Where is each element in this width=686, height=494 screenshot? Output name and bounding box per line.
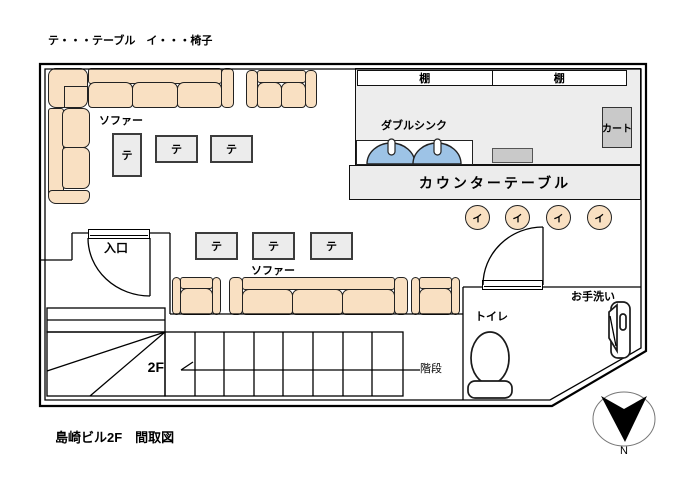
stair-treads bbox=[195, 332, 372, 396]
sill-line bbox=[90, 235, 148, 236]
counter-table: カウンターテーブル bbox=[349, 165, 641, 200]
toilet-label: トイレ bbox=[475, 311, 508, 323]
toilet-room-walls bbox=[463, 287, 641, 400]
counter-chair-2: イ bbox=[505, 205, 530, 230]
sofa3-armrest bbox=[229, 277, 243, 315]
table-2: テ bbox=[155, 135, 198, 163]
shelf-right: 棚 bbox=[493, 71, 627, 85]
counter-chair-1: イ bbox=[465, 205, 490, 230]
washbasin-cabinet bbox=[611, 302, 630, 358]
table-6: テ bbox=[310, 232, 353, 260]
toilet-tank bbox=[468, 381, 512, 398]
legend-text: テ・・・テーブル イ・・・椅子 bbox=[48, 35, 212, 47]
sofa-armrest bbox=[221, 68, 234, 108]
toilet-door-arc bbox=[483, 227, 543, 285]
sofa-endcap bbox=[48, 190, 90, 204]
table-3: テ bbox=[210, 135, 253, 163]
sill-line bbox=[484, 286, 541, 287]
sofa-cushion bbox=[62, 108, 90, 148]
double-sink-unit bbox=[356, 140, 473, 165]
sofa3-cushion bbox=[342, 289, 395, 315]
kitchen-appliance bbox=[492, 148, 533, 163]
armchair2-arm bbox=[451, 277, 460, 315]
cart: カート bbox=[602, 107, 632, 148]
sofa3-cushion bbox=[242, 289, 293, 315]
toilet-door-sill bbox=[482, 280, 543, 290]
floor-2f-label: 2F bbox=[138, 360, 164, 375]
counter-chair-4: イ bbox=[587, 205, 612, 230]
sofa3-cushion bbox=[292, 289, 343, 315]
sofa2-cushion bbox=[257, 82, 282, 108]
entrance-label: 入口 bbox=[104, 242, 144, 255]
handwash-label: お手洗い bbox=[571, 291, 615, 303]
washbasin-handle bbox=[620, 314, 626, 330]
sofa3-armrest bbox=[394, 277, 408, 315]
shelf-left: 棚 bbox=[358, 71, 493, 85]
sofa-label-top: ソファー bbox=[99, 115, 143, 127]
table-5: テ bbox=[252, 232, 295, 260]
sofa-corner-seam bbox=[64, 86, 88, 108]
sofa2-cushion bbox=[281, 82, 306, 108]
sofa-cushion bbox=[88, 82, 133, 108]
stair-top-steps bbox=[47, 308, 165, 332]
floor-plan: テ・・・テーブル イ・・・椅子 島崎ビル2F 間取図 棚 棚 カート ダブルシン… bbox=[0, 0, 686, 494]
plan-title: 島崎ビル2F 間取図 bbox=[55, 431, 174, 445]
washbasin-bowl bbox=[609, 305, 617, 351]
armchair2-cushion bbox=[419, 288, 452, 315]
north-arrow-icon bbox=[601, 396, 647, 442]
washbasin-detail bbox=[610, 316, 616, 346]
table-4: テ bbox=[195, 232, 238, 260]
sofa-label-mid: ソファー bbox=[251, 265, 295, 277]
armchair1-cushion bbox=[180, 288, 213, 315]
stairs-label: 階段 bbox=[420, 363, 442, 375]
armchair1-arm bbox=[212, 277, 221, 315]
sofa-cushion bbox=[132, 82, 178, 108]
sofa-cushion bbox=[62, 147, 90, 189]
sofa-cushion bbox=[177, 82, 222, 108]
shelf-band: 棚 棚 bbox=[357, 70, 627, 86]
toilet-bowl bbox=[471, 332, 509, 384]
counter-chair-3: イ bbox=[546, 205, 571, 230]
sofa2-armrest bbox=[305, 70, 317, 108]
stair-run bbox=[165, 332, 403, 396]
compass-n-label: N bbox=[612, 445, 636, 457]
compass-circle bbox=[593, 392, 655, 446]
stair-direction-arrow bbox=[181, 362, 420, 370]
double-sink-label: ダブルシンク bbox=[381, 120, 447, 132]
entrance-door-sill bbox=[88, 229, 150, 239]
table-1: テ bbox=[112, 133, 142, 177]
